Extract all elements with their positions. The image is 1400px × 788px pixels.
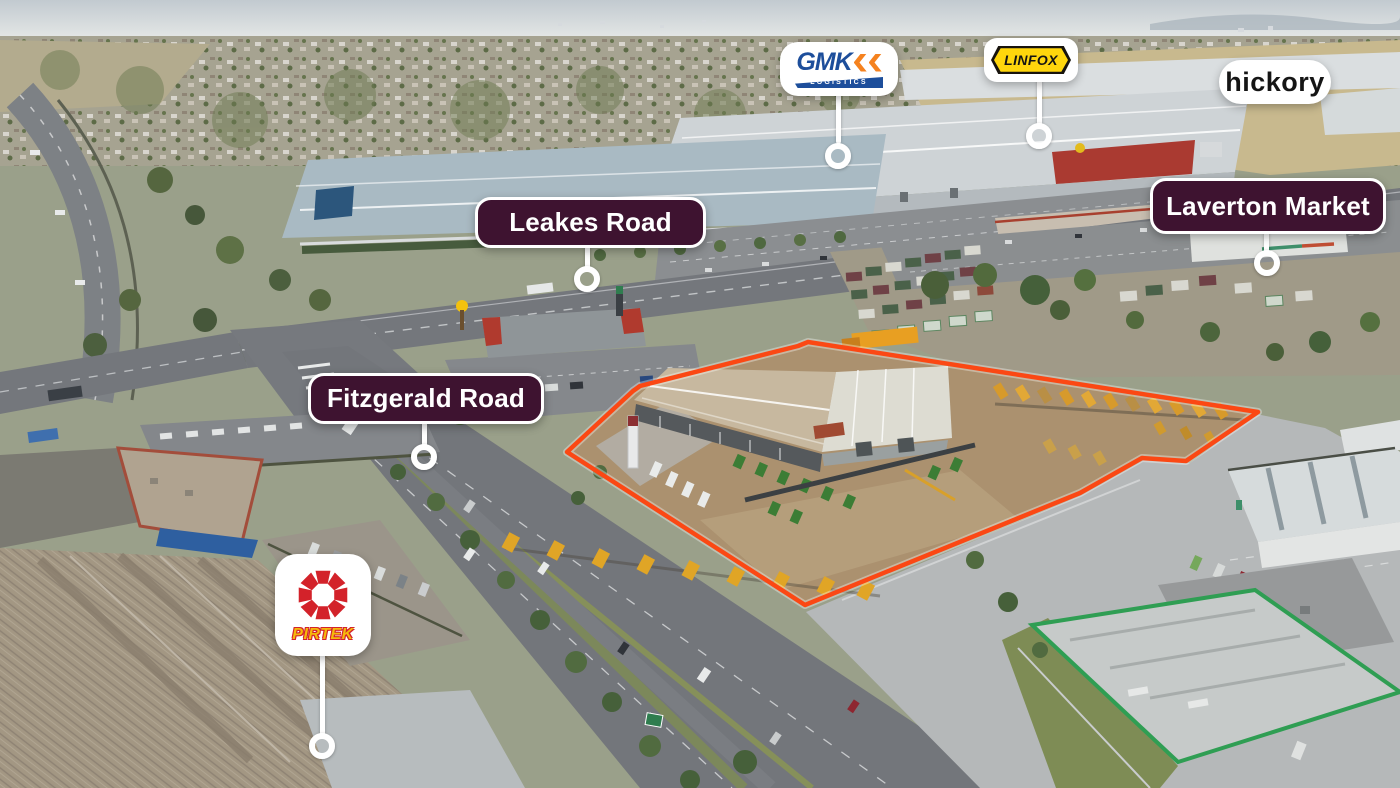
callout-gmk: GMK LOGISTICS — [780, 42, 898, 96]
gmk-chevron-icon — [869, 54, 882, 72]
gmk-map-marker — [825, 143, 851, 169]
aerial-marketing-image: GMK LOGISTICS LINFOX hickory Leakes Road… — [0, 0, 1400, 788]
gmk-chevron-icon — [854, 54, 867, 72]
label-leakes-road: Leakes Road — [475, 197, 706, 248]
linfox-logo: LINFOX — [991, 45, 1071, 76]
gmk-logo-text: GMK — [796, 50, 851, 75]
label-fitzgerald-road: Fitzgerald Road — [308, 373, 544, 424]
pirtek-leader-line — [320, 652, 325, 736]
linfox-map-marker — [1026, 123, 1052, 149]
linfox-leader-line — [1037, 78, 1042, 126]
gmk-tagline: LOGISTICS — [810, 79, 868, 86]
callout-linfox: LINFOX — [984, 38, 1078, 82]
fitzgerald-road-map-marker — [411, 444, 437, 470]
callout-hickory: hickory — [1219, 60, 1331, 104]
linfox-logo-text: LINFOX — [1004, 52, 1058, 68]
linfox-logo-inner: LINFOX — [994, 47, 1068, 73]
gmk-logo: GMK — [796, 50, 881, 75]
laverton-market-map-marker — [1254, 250, 1280, 276]
aerial-photo — [0, 0, 1400, 788]
gmk-leader-line — [836, 94, 841, 144]
leakes-road-map-marker — [574, 266, 600, 292]
label-laverton-market: Laverton Market — [1150, 178, 1386, 234]
hickory-logo-text: hickory — [1225, 67, 1325, 98]
gmk-logo-bar: LOGISTICS — [795, 77, 883, 88]
pirtek-pinwheel-icon — [295, 567, 351, 623]
callout-pirtek: PIRTEK — [275, 554, 371, 656]
pirtek-map-marker — [309, 733, 335, 759]
pirtek-logo-text: PIRTEK — [292, 626, 353, 644]
